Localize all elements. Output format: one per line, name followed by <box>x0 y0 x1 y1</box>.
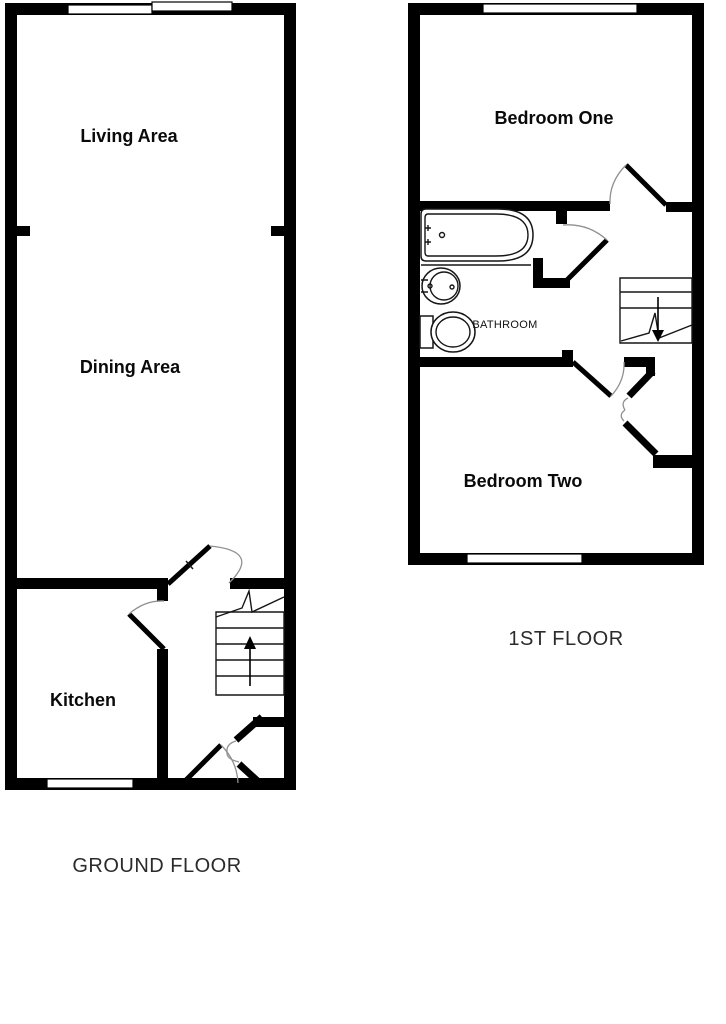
door-arc <box>563 225 607 240</box>
room-label-bathroom: BATHROOM <box>472 319 537 331</box>
room-label-kitchen: Kitchen <box>50 690 116 710</box>
toilet <box>420 312 475 352</box>
door-arc <box>221 745 238 783</box>
ground-floor-plan: Living Area Dining Area Kitchen GROUND F… <box>5 2 296 877</box>
door-leaf <box>129 614 164 649</box>
window <box>152 2 232 11</box>
sink <box>421 268 460 304</box>
window <box>47 779 133 788</box>
room-label-bedroom-two: Bedroom Two <box>464 471 583 491</box>
angled-wall <box>236 717 262 740</box>
window <box>68 5 152 14</box>
door-leaf <box>626 165 666 205</box>
cupboard-door-arc <box>623 398 628 410</box>
door-arc <box>210 546 242 583</box>
bathtub <box>421 209 533 265</box>
window <box>483 4 637 13</box>
first-floor-plan: Bedroom One BATHROOM Bedroom Two 1ST FLO… <box>408 3 704 650</box>
cupboard-door-arc <box>227 741 236 752</box>
stairs-down <box>620 278 692 343</box>
ground-floor-windows <box>47 2 232 788</box>
room-label-living-area: Living Area <box>80 126 178 146</box>
window <box>467 554 582 563</box>
door-arc <box>610 165 626 204</box>
cupboard-door-arc <box>621 410 625 421</box>
floorplan-svg: Living Area Dining Area Kitchen GROUND F… <box>0 0 726 1024</box>
door-arc <box>611 362 624 396</box>
stairs-up <box>216 591 284 695</box>
ground-floor-title: GROUND FLOOR <box>72 855 241 877</box>
ground-floor-walls <box>5 3 296 790</box>
angled-wall <box>629 371 653 396</box>
door-arc <box>129 601 164 614</box>
room-label-dining-area: Dining Area <box>80 357 181 377</box>
door-leaf <box>573 362 611 396</box>
first-floor-title: 1ST FLOOR <box>508 628 623 650</box>
floorplan-image: Living Area Dining Area Kitchen GROUND F… <box>0 0 726 1024</box>
room-label-bedroom-one: Bedroom One <box>494 108 613 128</box>
angled-wall <box>625 423 656 454</box>
door-leaf <box>566 240 607 281</box>
